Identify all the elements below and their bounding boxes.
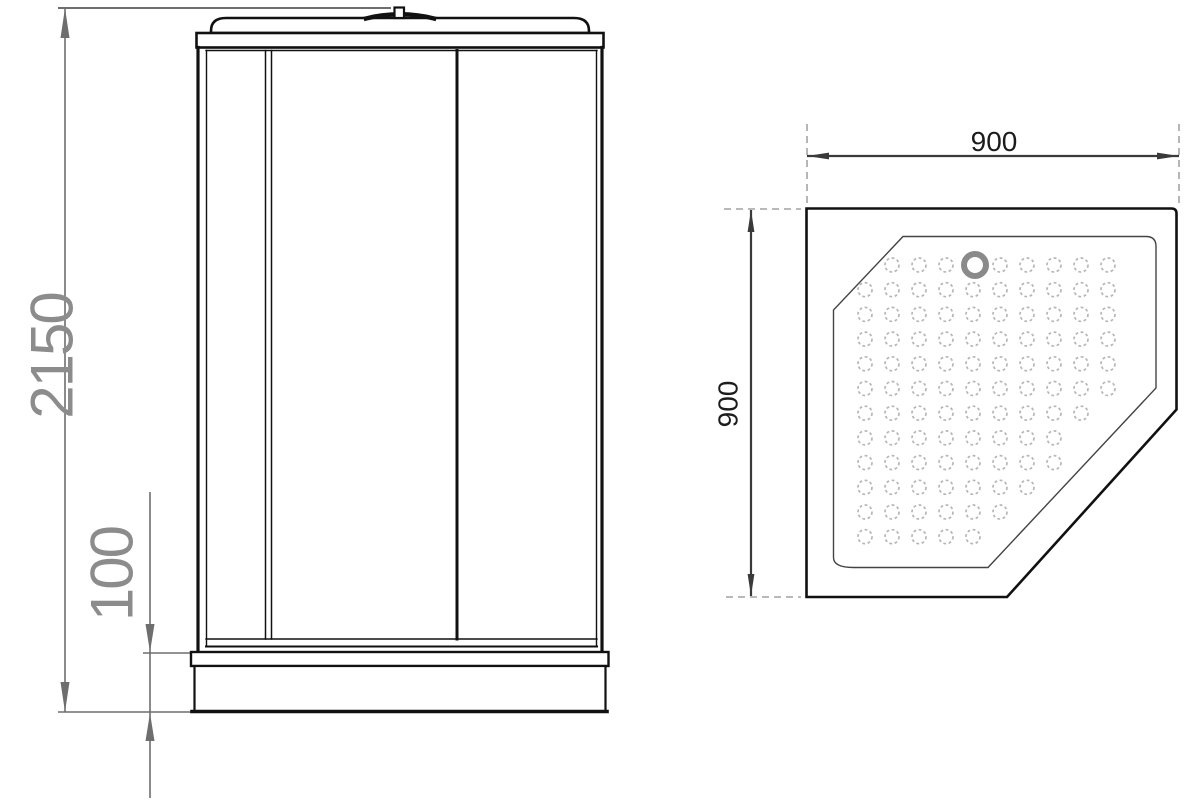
overall-height-value: 2150: [19, 293, 86, 419]
arrowhead-right: [1157, 153, 1179, 160]
shower-cabin-front: [191, 8, 609, 712]
tray-outer-outline: [807, 209, 1177, 598]
arrowhead-down: [748, 574, 755, 596]
tray-height-value: 100: [79, 526, 146, 621]
arrowhead-up: [146, 713, 155, 741]
arrowhead-down: [61, 682, 70, 712]
tray-skirt-front: [195, 666, 606, 712]
front-view: 2150 100: [19, 8, 609, 799]
top-frame-rail: [197, 33, 604, 48]
arrowhead-up: [748, 210, 755, 232]
top-view: 900 900: [713, 124, 1180, 597]
tray-rim-front: [191, 652, 609, 666]
shower-tray-plan: [807, 209, 1177, 598]
arrowhead-down: [146, 624, 155, 652]
width-value: 900: [971, 126, 1018, 157]
arrowhead-left: [807, 153, 829, 160]
dimension-tray-height: 100: [79, 492, 199, 798]
dimension-overall-height: 2150: [19, 8, 392, 712]
arrowhead-up: [61, 8, 70, 38]
dimension-width: 900: [807, 124, 1179, 204]
roof-panel: [211, 18, 589, 33]
technical-drawing: 2150 100: [0, 0, 1195, 800]
roof-knob: [395, 8, 405, 19]
depth-value: 900: [713, 381, 744, 428]
dimension-depth: 900: [713, 209, 802, 597]
